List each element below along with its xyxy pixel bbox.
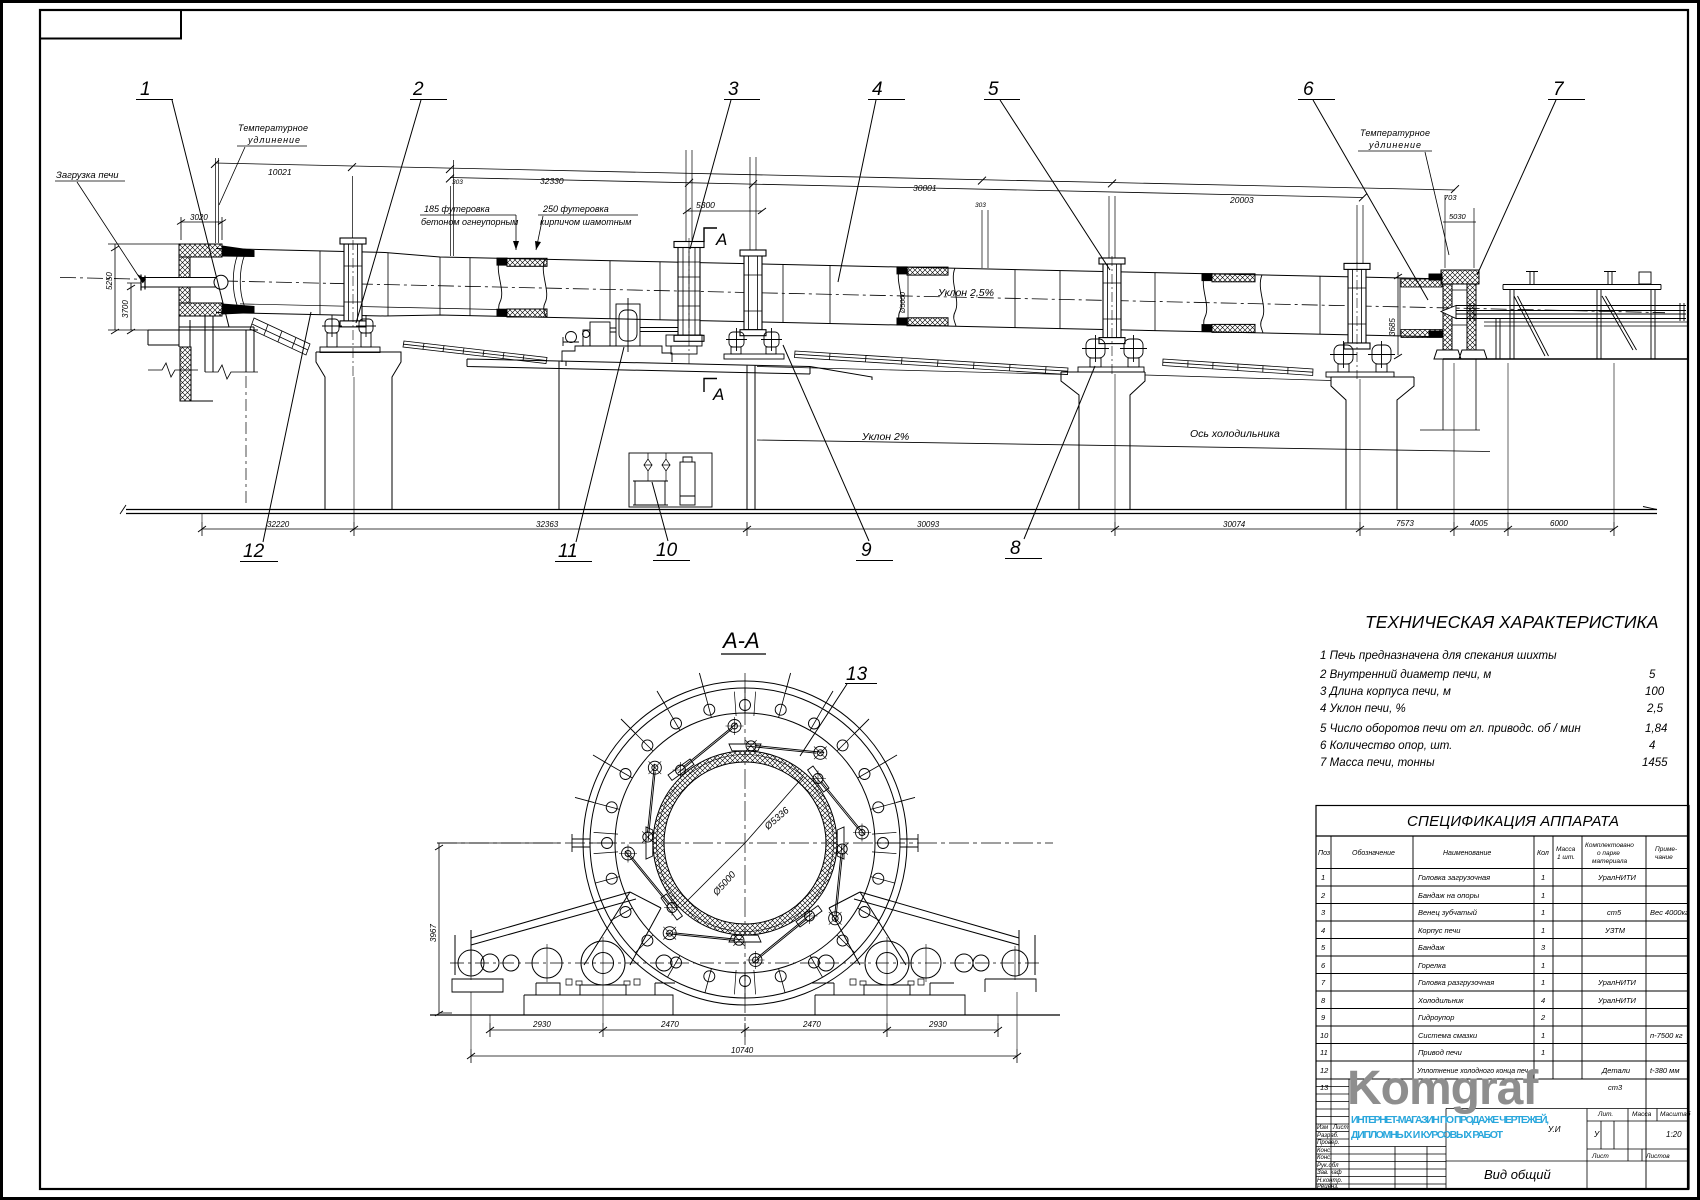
svg-text:30093: 30093	[917, 520, 940, 529]
svg-text:Конс.: Конс.	[1317, 1148, 1332, 1154]
svg-text:ст5: ст5	[1607, 908, 1622, 917]
svg-text:5300: 5300	[696, 200, 715, 210]
svg-text:А: А	[712, 385, 724, 404]
svg-text:30074: 30074	[1223, 520, 1246, 529]
svg-text:Лист: Лист	[1591, 1153, 1609, 1160]
svg-text:11: 11	[1320, 1048, 1328, 1057]
svg-text:8: 8	[1321, 996, 1326, 1005]
svg-text:ТЕХНИЧЕСКАЯ ХАРАКТЕРИСТИКА: ТЕХНИЧЕСКАЯ ХАРАКТЕРИСТИКА	[1365, 612, 1659, 632]
svg-text:Бандаж на опоры: Бандаж на опоры	[1418, 891, 1480, 900]
svg-text:32330: 32330	[540, 176, 564, 186]
svg-text:СПЕЦИФИКАЦИЯ АППАРАТА: СПЕЦИФИКАЦИЯ АППАРАТА	[1407, 813, 1619, 830]
svg-text:УралНИТИ: УралНИТИ	[1597, 978, 1637, 987]
svg-text:Поз: Поз	[1318, 850, 1331, 857]
svg-text:УралНИТИ: УралНИТИ	[1597, 996, 1637, 1005]
svg-text:Температурное: Температурное	[238, 123, 308, 133]
svg-text:12: 12	[1320, 1066, 1329, 1075]
svg-text:2,5: 2,5	[1646, 703, 1664, 715]
svg-text:4005: 4005	[1470, 519, 1488, 528]
svg-text:1: 1	[1541, 908, 1545, 917]
svg-text:1: 1	[1541, 978, 1545, 987]
svg-text:Ось холодильника: Ось холодильника	[1190, 428, 1280, 440]
svg-text:ИНТЕРНЕТ-МАГАЗИН ПО ПРОДАЖЕ ЧЕ: ИНТЕРНЕТ-МАГАЗИН ПО ПРОДАЖЕ ЧЕРТЕЖЕЙ,	[1351, 1113, 1549, 1126]
svg-text:7: 7	[1321, 978, 1326, 987]
svg-text:Комплектовано: Комплектовано	[1585, 842, 1634, 849]
svg-text:5: 5	[1321, 943, 1326, 952]
svg-text:удлинение: удлинение	[247, 135, 300, 145]
svg-text:4: 4	[1649, 740, 1655, 752]
svg-text:Масштаб: Масштаб	[1660, 1110, 1691, 1118]
svg-text:2: 2	[1320, 891, 1326, 900]
svg-text:кирпичом шамотным: кирпичом шамотным	[540, 217, 631, 227]
svg-text:Разраб.: Разраб.	[1317, 1133, 1339, 1139]
svg-text:Горелка: Горелка	[1418, 961, 1446, 970]
svg-text:13: 13	[846, 664, 868, 685]
svg-text:100: 100	[1645, 686, 1665, 698]
svg-text:303: 303	[975, 202, 986, 209]
svg-text:8: 8	[1010, 538, 1021, 559]
svg-text:1 Печь предназначена для спек: 1 Печь предназначена для спекания шихты	[1320, 650, 1557, 662]
svg-text:303: 303	[452, 179, 463, 186]
svg-text:Приме-: Приме-	[1655, 846, 1678, 853]
svg-text:703: 703	[1444, 193, 1457, 202]
svg-text:А-А: А-А	[721, 628, 760, 653]
svg-text:9: 9	[1321, 1013, 1326, 1022]
svg-text:чание: чание	[1655, 854, 1673, 861]
svg-text:Привод печи: Привод печи	[1418, 1048, 1463, 1057]
svg-text:Вид общий: Вид общий	[1484, 1167, 1551, 1182]
svg-text:7573: 7573	[1396, 519, 1414, 528]
svg-text:3700: 3700	[121, 300, 130, 318]
svg-text:Уклон 2,5%: Уклон 2,5%	[937, 287, 994, 299]
svg-text:3: 3	[728, 79, 739, 100]
svg-text:2470: 2470	[660, 1020, 679, 1029]
svg-text:Лит.: Лит.	[1597, 1111, 1613, 1118]
svg-text:Вес 4000кг: Вес 4000кг	[1650, 908, 1689, 917]
svg-text:2: 2	[1540, 1013, 1546, 1022]
svg-text:Конс.: Конс.	[1317, 1155, 1332, 1161]
svg-text:Листов: Листов	[1645, 1153, 1670, 1160]
svg-text:9: 9	[861, 540, 872, 561]
svg-text:2930: 2930	[928, 1020, 947, 1029]
svg-text:1: 1	[1541, 873, 1545, 882]
svg-text:1: 1	[1541, 1031, 1545, 1040]
svg-text:t-380 мм: t-380 мм	[1650, 1066, 1679, 1075]
svg-text:1,84: 1,84	[1645, 723, 1667, 735]
svg-text:Масса: Масса	[1556, 846, 1576, 853]
svg-text:У: У	[1593, 1130, 1600, 1139]
svg-text:10: 10	[1320, 1031, 1329, 1040]
svg-text:У.И: У.И	[1547, 1125, 1561, 1134]
svg-text:20003: 20003	[1229, 195, 1254, 205]
svg-text:Головка загрузочная: Головка загрузочная	[1418, 873, 1490, 882]
svg-text:2930: 2930	[532, 1020, 551, 1029]
svg-text:30001: 30001	[913, 183, 937, 193]
svg-text:3967: 3967	[429, 924, 438, 942]
svg-text:5: 5	[988, 79, 999, 100]
svg-text:ст3: ст3	[1608, 1083, 1623, 1092]
svg-text:Масса: Масса	[1632, 1111, 1652, 1118]
svg-text:Детали: Детали	[1601, 1066, 1631, 1075]
svg-text:1: 1	[140, 79, 151, 100]
svg-text:6 Количество опор, шт.: 6 Количество опор, шт.	[1320, 740, 1452, 752]
svg-text:12: 12	[243, 541, 265, 562]
svg-text:УЗТМ: УЗТМ	[1604, 926, 1626, 935]
svg-text:Температурное: Температурное	[1360, 128, 1430, 138]
svg-text:Кол: Кол	[1537, 850, 1549, 857]
svg-text:5: 5	[1649, 669, 1656, 681]
svg-text:2: 2	[412, 79, 424, 100]
svg-text:о парке: о парке	[1597, 850, 1620, 857]
svg-text:1: 1	[1541, 1048, 1545, 1057]
svg-text:Лист: Лист	[1332, 1125, 1348, 1131]
svg-text:6: 6	[1303, 79, 1314, 100]
svg-text:Система смазки: Система смазки	[1418, 1031, 1478, 1040]
svg-text:5030: 5030	[1449, 212, 1467, 221]
svg-text:Обозначение: Обозначение	[1352, 849, 1395, 857]
svg-text:3: 3	[1321, 908, 1326, 917]
svg-text:5 Число оборотов печи от гл.: 5 Число оборотов печи от гл. приводс. об…	[1320, 723, 1581, 735]
svg-text:Наименование: Наименование	[1443, 850, 1491, 857]
svg-text:6: 6	[1321, 961, 1326, 970]
svg-text:250 футеровка: 250 футеровка	[542, 204, 609, 214]
svg-text:бетоном огнеупорным: бетоном огнеупорным	[421, 217, 518, 227]
svg-text:1455: 1455	[1642, 757, 1668, 769]
svg-text:2 Внутренний диаметр печи, м: 2 Внутренний диаметр печи, м	[1319, 669, 1491, 681]
svg-text:4 Уклон печи, %: 4 Уклон печи, %	[1320, 703, 1406, 715]
svg-text:13: 13	[1320, 1083, 1329, 1092]
svg-text:Венец зубчатый: Венец зубчатый	[1418, 908, 1478, 917]
svg-text:1:20: 1:20	[1666, 1130, 1682, 1139]
svg-text:4: 4	[1541, 996, 1545, 1005]
svg-text:185 футеровка: 185 футеровка	[424, 204, 490, 214]
svg-text:ДИПЛОМНЫХ И КУРСОВЫХ РАБОТ: ДИПЛОМНЫХ И КУРСОВЫХ РАБОТ	[1351, 1129, 1504, 1141]
svg-text:УралНИТИ: УралНИТИ	[1597, 873, 1637, 882]
svg-text:32220: 32220	[267, 520, 290, 529]
svg-text:Ø5000: Ø5000	[900, 292, 907, 314]
svg-text:Головка разгрузочная: Головка разгрузочная	[1418, 978, 1494, 987]
svg-text:2470: 2470	[802, 1020, 821, 1029]
svg-text:11: 11	[558, 541, 578, 562]
svg-text:Гидроупор: Гидроупор	[1418, 1013, 1454, 1022]
svg-text:Корпус печи: Корпус печи	[1418, 926, 1461, 935]
svg-text:Загрузка печи: Загрузка печи	[56, 170, 119, 181]
svg-text:удлинение: удлинение	[1368, 140, 1421, 150]
svg-text:Уклон 2%: Уклон 2%	[861, 431, 909, 443]
svg-text:Зав. каф: Зав. каф	[1317, 1170, 1342, 1176]
svg-text:Komgraf: Komgraf	[1347, 1062, 1539, 1115]
svg-text:4: 4	[872, 79, 883, 100]
svg-text:1: 1	[1541, 961, 1545, 970]
svg-text:7 Масса печи, тонны: 7 Масса печи, тонны	[1320, 757, 1435, 769]
svg-text:3020: 3020	[190, 213, 208, 222]
svg-text:1: 1	[1321, 873, 1325, 882]
svg-text:Холодильник: Холодильник	[1417, 996, 1464, 1005]
svg-text:10740: 10740	[731, 1046, 754, 1055]
svg-text:3 Длина корпуса печи, м: 3 Длина корпуса печи, м	[1320, 686, 1451, 698]
svg-text:А: А	[715, 230, 727, 249]
svg-text:Изм: Изм	[1317, 1125, 1328, 1131]
svg-text:материала: материала	[1592, 858, 1628, 865]
svg-text:3: 3	[1541, 943, 1546, 952]
svg-text:1: 1	[1541, 926, 1545, 935]
svg-text:5250: 5250	[105, 272, 114, 290]
svg-text:Провер.: Провер.	[1317, 1140, 1339, 1146]
svg-text:1 шт.: 1 шт.	[1557, 854, 1575, 861]
svg-text:3685: 3685	[1388, 318, 1397, 336]
svg-text:Реценз.: Реценз.	[1317, 1184, 1339, 1190]
svg-text:7: 7	[1553, 79, 1565, 100]
svg-text:Бандаж: Бандаж	[1418, 943, 1445, 952]
svg-text:4: 4	[1321, 926, 1325, 935]
svg-text:32363: 32363	[536, 520, 559, 529]
svg-text:10: 10	[656, 540, 678, 561]
svg-text:1: 1	[1541, 891, 1545, 900]
svg-text:Рук.обл: Рук.обл	[1317, 1163, 1339, 1169]
svg-text:п-7500 кг: п-7500 кг	[1650, 1031, 1683, 1040]
svg-text:10021: 10021	[268, 167, 292, 177]
svg-text:6000: 6000	[1550, 519, 1568, 528]
